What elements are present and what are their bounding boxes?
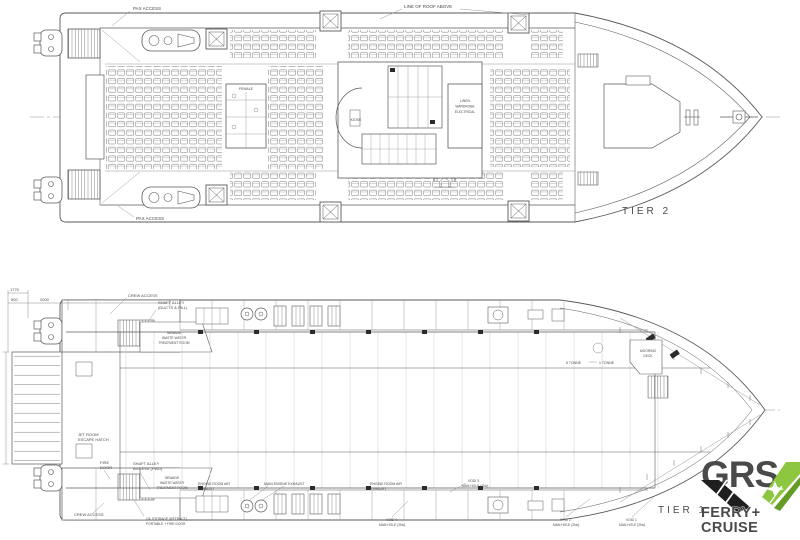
logo-ferry-text: FERRY+ <box>701 505 760 521</box>
er-air-exhaust-right-l1: ENGINE ROOM AIR <box>370 482 402 486</box>
er-air-exhaust-left-l2: EXHAUST <box>198 487 215 491</box>
er-air-exhaust-left-l1: ENGINE ROOM AIR <box>198 482 230 486</box>
linen-label-1: LINEN <box>460 99 470 103</box>
seating-band-bottom-1 <box>230 171 316 200</box>
hatch-xbox-4 <box>320 202 341 222</box>
tier1-pod-starboard <box>34 465 62 491</box>
tonne1-label: 1 TONNE <box>599 361 615 365</box>
dim-2000: 2000 <box>40 297 50 302</box>
tier2-plan: FEMALE KIOSK <box>30 4 780 222</box>
galley <box>362 134 436 164</box>
ferry-deckplan-sheet: FEMALE KIOSK <box>0 0 800 540</box>
void2-l1: VOID 2 <box>560 518 571 522</box>
tier2-trunk <box>86 75 104 159</box>
female-label: FEMALE <box>239 87 254 91</box>
tier2-stairs-port <box>68 29 100 58</box>
hatch-xbox-7 <box>508 13 529 33</box>
linen-room: LINEN WARDROBE ELECTRICAL <box>448 84 482 148</box>
kiosk-label: KIOSK <box>351 118 362 122</box>
hatch-xbox-1 <box>206 29 227 49</box>
mooring-deck-l1: MOORING <box>640 349 657 353</box>
hatch-xbox-2 <box>206 185 227 205</box>
seating-block-main-left <box>106 66 222 169</box>
jet-room-l2: ESCAPE HATCH <box>78 437 109 442</box>
oil-storage-l2: PORTABLE + FIRE DOOR <box>146 522 186 526</box>
fire-door-l2: DOOR <box>100 465 112 470</box>
linen-label-3: ELECTRICAL <box>455 110 476 114</box>
linen-label-2: WARDROBE <box>455 105 475 109</box>
toilet-stalls <box>388 66 442 128</box>
liferaft-port <box>142 30 200 51</box>
oil-storage-l1: OIL STORAGE (RETRACT) <box>146 517 187 521</box>
tier1-caption: TIER 1 <box>658 505 707 516</box>
void2-l2: MAN HOLE (2No) <box>553 523 579 527</box>
stern-pod-starboard <box>34 177 62 203</box>
void4-l1: VOID 4 <box>386 518 397 522</box>
bow-stairs <box>648 376 668 398</box>
void4-l2: MAN HOLE (2No) <box>379 523 405 527</box>
er-air-exhaust-right-l2: EXHAUST <box>370 487 387 491</box>
vehicle-deck <box>66 330 710 490</box>
seating-band-top-2 <box>348 30 504 58</box>
tier1-pod-port <box>34 318 62 344</box>
seating-band-bottom-3 <box>530 171 563 200</box>
seating-block-mid <box>268 66 324 169</box>
roof-line-note: LINE OF ROOF ABOVE <box>404 4 452 9</box>
liferaft-starboard <box>142 187 200 208</box>
escape-hatch-top <box>76 362 92 376</box>
seating-band-top-3 <box>530 30 563 58</box>
boarding-hatch-bottom <box>578 172 598 185</box>
void1-l2: MAN HOLE (2No) <box>619 523 645 527</box>
dim-1770: 1770 <box>10 287 20 292</box>
toilet-block-female: FEMALE <box>226 84 266 148</box>
shaft-alley-access-l2: ACCESS (FWD) <box>133 466 163 471</box>
void3-l1: VOID 3 <box>468 479 479 483</box>
stern-ramp <box>12 352 62 464</box>
void1-l1: VOID 1 <box>626 518 637 522</box>
hatch-xbox-8 <box>508 201 529 221</box>
crew-access-top-label: CREW ACCESS <box>128 293 158 298</box>
escape-hatch-bottom <box>76 444 92 458</box>
deckplan-drawing: FEMALE KIOSK <box>0 0 800 540</box>
logo-cruise-text: CRUISE <box>701 520 758 536</box>
void3-l2: MAN HOLE (2No) <box>462 484 488 488</box>
tier1-plan: SEWAGE WASTE WATER TREATMENT ROOM SEWAGE… <box>3 287 780 527</box>
pax-access-bottom-label: PAX ACCESS <box>136 216 164 221</box>
mooring-deck-l2: DECK <box>643 354 653 358</box>
seating-block-fwd <box>490 67 570 167</box>
tier2-caption: TIER 2 <box>622 206 671 217</box>
shaft-alley-fwd-l2: (DUCTS & FILL) <box>158 305 188 310</box>
seating-band-top-1 <box>230 30 316 58</box>
tier2-stairs-starboard <box>68 170 100 199</box>
grs-ferry-cruise-logo: GRS FERRY+ CRUISE <box>701 454 800 536</box>
dim-500: 500 <box>11 297 18 302</box>
main-engine-exhaust-label: MAIN ENGINE EXHAUST <box>264 482 306 486</box>
stern-pod-port <box>34 30 62 56</box>
boarding-hatch-top <box>578 54 598 67</box>
hatch-xbox-3 <box>320 11 341 31</box>
crew-access-bottom-label: CREW ACCESS <box>74 512 104 517</box>
tonne5-label: 5 TONNE <box>566 361 582 365</box>
service-core: KIOSK <box>336 62 482 178</box>
pax-access-top-label: PAX ACCESS <box>133 6 161 11</box>
